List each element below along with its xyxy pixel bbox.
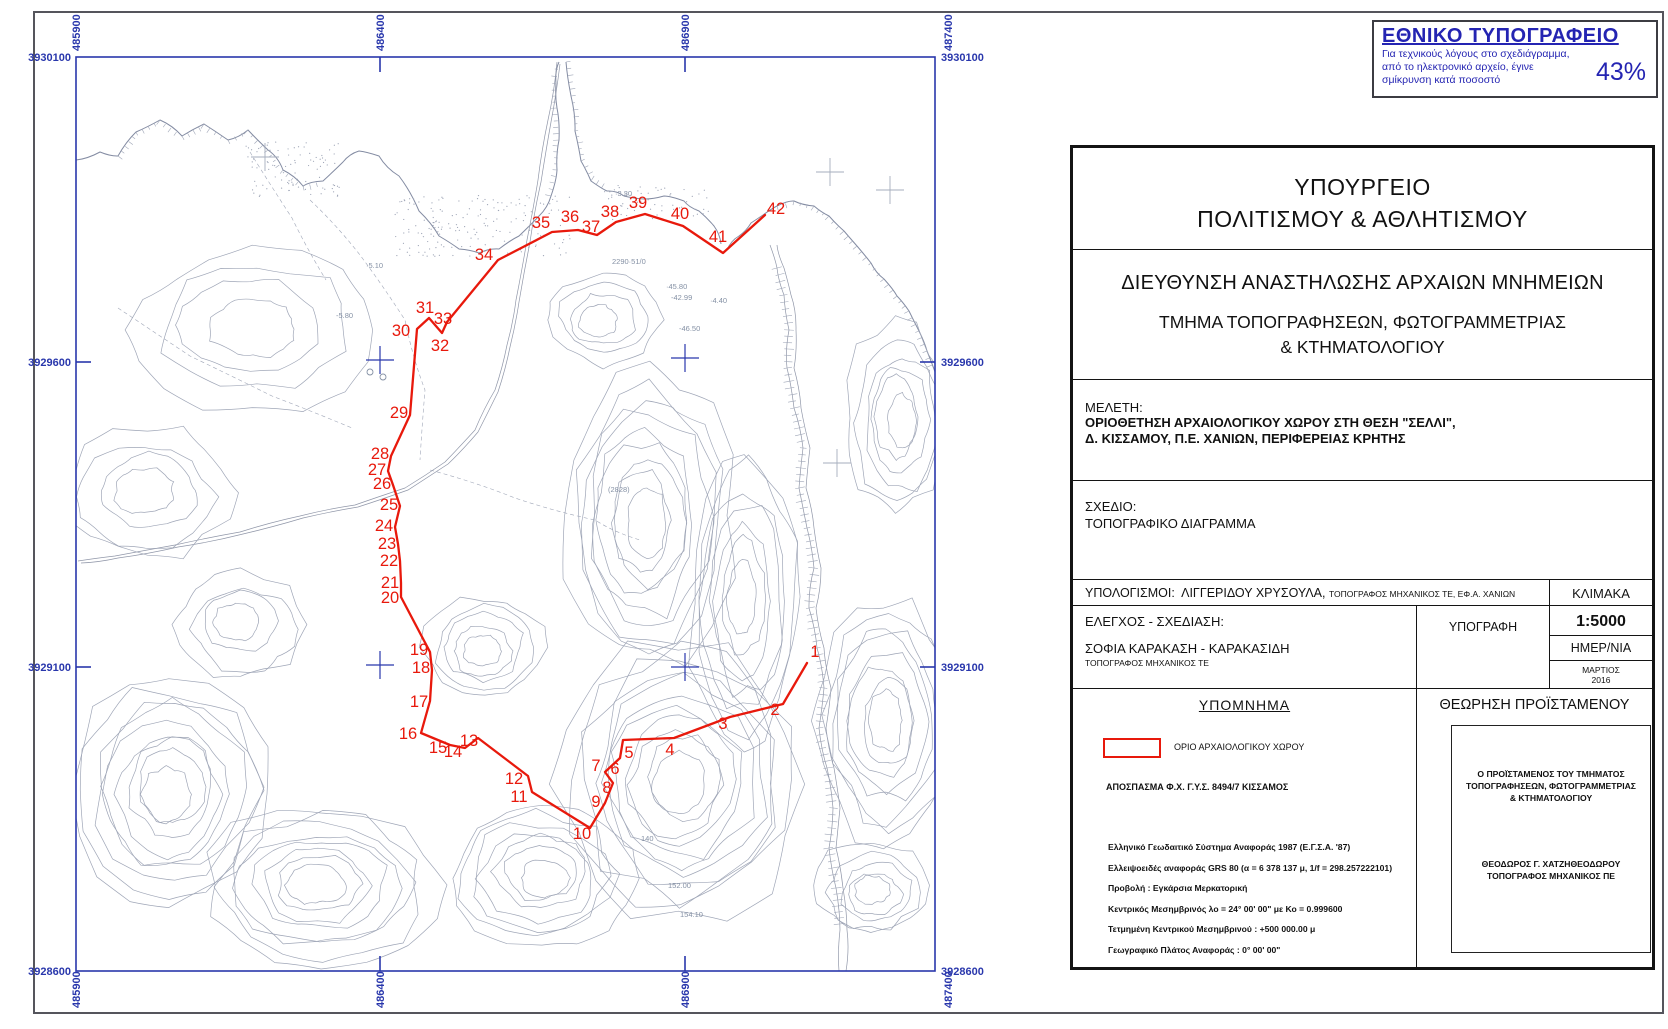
drawing-value: ΤΟΠΟΓΡΑΦΙΚΟ ΔΙΑΓΡΑΜΜΑ (1085, 516, 1652, 531)
boundary-point-label-17: 17 (410, 693, 428, 711)
boundary-point-label-41: 41 (709, 228, 727, 246)
signature-cell: ΥΠΟΓΡΑΦΗ (1416, 606, 1549, 688)
approval-head-line: Ο ΠΡΟΪΣΤΑΜΕΝΟΣ ΤΟΥ ΤΜΗΜΑΤΟΣ (1452, 768, 1650, 780)
study-line-2: Δ. ΚΙΣΣΑΜΟΥ, Π.Ε. ΧΑΝΙΩΝ, ΠΕΡΙΦΕΡΕΙΑΣ ΚΡ… (1085, 431, 1652, 447)
boundary-point-label-31: 31 (416, 299, 434, 317)
boundary-point-label-4: 4 (665, 741, 674, 759)
check-title: ΤΟΠΟΓΡΑΦΟΣ ΜΗΧΑΝΙΚΟΣ ΤΕ (1085, 658, 1416, 668)
ministry-section: ΥΠΟΥΡΓΕΙΟ ΠΟΛΙΤΙΣΜΟΥ & ΑΘΛΗΤΙΣΜΟΥ (1073, 148, 1652, 250)
svg-text:-46.50: -46.50 (679, 324, 700, 333)
scanned-topographic-drawing-page: 4859004859004864004864004869004869004874… (0, 0, 1668, 1029)
boundary-point-label-40: 40 (671, 205, 689, 223)
svg-text:140: 140 (641, 834, 654, 843)
geodetic-line: Ελληνικό Γεωδαιτικό Σύστημα Αναφοράς 198… (1108, 837, 1392, 858)
boundary-point-label-34: 34 (475, 246, 493, 264)
boundary-point-label-25: 25 (380, 496, 398, 514)
svg-text:486900: 486900 (680, 971, 692, 1008)
date-month: ΜΑΡΤΙΟΣ (1550, 665, 1652, 675)
boundary-point-label-9: 9 (591, 793, 600, 811)
calculations-label: ΥΠΟΛΟΓΙΣΜΟΙ: (1085, 586, 1175, 600)
geodetic-line: Γεωγραφικό Πλάτος Αναφοράς : 0° 00' 00" (1108, 940, 1392, 961)
drawing-section: ΣΧΕΔΙΟ: ΤΟΠΟΓΡΑΦΙΚΟ ΔΙΑΓΡΑΜΜΑ (1073, 481, 1652, 580)
geodetic-line: Τετμημένη Κεντρικού Μεσημβρινού : +500 0… (1108, 919, 1392, 940)
check-name: ΣΟΦΙΑ ΚΑΡΑΚΑΣΗ - ΚΑΡΑΚΑΣΙΔΗ (1085, 641, 1416, 656)
department-line-2: & ΚΤΗΜΑΤΟΛΟΓΙΟΥ (1073, 337, 1652, 358)
boundary-point-label-37: 37 (582, 218, 600, 236)
drawing-label: ΣΧΕΔΙΟ: (1085, 499, 1652, 514)
geodetic-info: Ελληνικό Γεωδαιτικό Σύστημα Αναφοράς 198… (1108, 837, 1392, 960)
calculations-name: ΛΙΓΓΕΡΙΔΟΥ ΧΡΥΣΟΥΛΑ, (1181, 586, 1325, 600)
stamp-line-3-text: σμίκρυνση κατά ποσοστό (1382, 74, 1500, 86)
stamp-line-3: σμίκρυνση κατά ποσοστό 43% (1382, 74, 1648, 87)
approval-head: Ο ΠΡΟΪΣΤΑΜΕΝΟΣ ΤΟΥ ΤΜΗΜΑΤΟΣ ΤΟΠΟΓΡΑΦΗΣΕΩ… (1452, 768, 1650, 804)
topo-linework (67, 61, 954, 971)
svg-text:485900: 485900 (71, 14, 83, 51)
boundary-point-label-16: 16 (399, 725, 417, 743)
boundary-point-label-42: 42 (767, 200, 785, 218)
date-year: 2016 (1550, 675, 1652, 685)
svg-text:3930100: 3930100 (941, 52, 984, 64)
boundary-point-label-10: 10 (573, 825, 591, 843)
approval-signatory-title: ΤΟΠΟΓΡΑΦΟΣ ΜΗΧΑΝΙΚΟΣ ΠΕ (1452, 870, 1650, 882)
ministry-line-2: ΠΟΛΙΤΙΣΜΟΥ & ΑΘΛΗΤΙΣΜΟΥ (1073, 206, 1652, 233)
boundary-point-label-15: 15 (429, 739, 447, 757)
scale-label-cell: ΚΛΙΜΑΚΑ (1549, 580, 1652, 605)
check-row: ΕΛΕΓΧΟΣ - ΣΧΕΔΙΑΣΗ: ΣΟΦΙΑ ΚΑΡΑΚΑΣΗ - ΚΑΡ… (1073, 606, 1652, 689)
boundary-point-label-28: 28 (371, 445, 389, 463)
boundary-point-label-3: 3 (718, 715, 727, 733)
geodetic-line: Κεντρικός Μεσημβρινός λο = 24° 00' 00" μ… (1108, 899, 1392, 920)
boundary-point-label-8: 8 (602, 779, 611, 797)
approval-signatory-name: ΘΕΟΔΩΡΟΣ Γ. ΧΑΤΖΗΘΕΟΔΩΡΟΥ (1452, 858, 1650, 870)
approval-title: ΘΕΩΡΗΣΗ ΠΡΟΪΣΤΑΜΕΝΟΥ (1417, 697, 1652, 713)
svg-text:3929100: 3929100 (941, 662, 984, 674)
calculations-title: ΤΟΠΟΓΡΑΦΟΣ ΜΗΧΑΝΙΚΟΣ ΤΕ, ΕΦ.Α. ΧΑΝΙΩΝ (1329, 589, 1515, 599)
grid-coordinate-labels: 4859004859004864004864004869004869004874… (28, 14, 984, 1008)
printing-office-stamp: ΕΘΝΙΚΟ ΤΥΠΟΓΡΑΦΕΙΟ Για τεχνικούς λόγους … (1372, 20, 1658, 98)
boundary-point-label-30: 30 (392, 322, 410, 340)
boundary-point-label-39: 39 (629, 194, 647, 212)
check-label: ΕΛΕΓΧΟΣ - ΣΧΕΔΙΑΣΗ: (1085, 614, 1416, 629)
svg-text:-5.80: -5.80 (336, 311, 353, 320)
date-value: ΜΑΡΤΙΟΣ 2016 (1550, 661, 1652, 688)
study-section: ΜΕΛΕΤΗ: ΟΡΙΟΘΕΤΗΣΗ ΑΡΧΑΙΟΛΟΓΙΚΟΥ ΧΩΡΟΥ Σ… (1073, 380, 1652, 481)
svg-text:-42.99: -42.99 (671, 293, 692, 302)
svg-text:152.00: 152.00 (668, 881, 691, 890)
svg-text:486900: 486900 (680, 14, 692, 51)
boundary-point-label-23: 23 (378, 535, 396, 553)
svg-text:3929600: 3929600 (28, 357, 71, 369)
ministry-line-1: ΥΠΟΥΡΓΕΙΟ (1073, 174, 1652, 201)
boundary-point-label-29: 29 (390, 404, 408, 422)
boundary-point-label-32: 32 (431, 337, 449, 355)
boundary-point-label-12: 12 (505, 770, 523, 788)
date-label: ΗΜΕΡ/ΝΙΑ (1550, 636, 1652, 661)
svg-text:3929100: 3929100 (28, 662, 71, 674)
legend-cell: ΥΠΟΜΝΗΜΑ ΟΡΙΟ ΑΡΧΑΙΟΛΟΓΙΚΟΥ ΧΩΡΟΥ ΑΠΟΣΠΑ… (1073, 689, 1416, 970)
boundary-point-label-35: 35 (532, 214, 550, 232)
svg-text:(2828): (2828) (608, 485, 630, 494)
svg-text:·5.10: ·5.10 (366, 261, 383, 270)
svg-text:487400: 487400 (943, 14, 955, 51)
legend-approval-row: ΥΠΟΜΝΗΜΑ ΟΡΙΟ ΑΡΧΑΙΟΛΟΓΙΚΟΥ ΧΩΡΟΥ ΑΠΟΣΠΑ… (1073, 689, 1652, 970)
approval-cell: ΘΕΩΡΗΣΗ ΠΡΟΪΣΤΑΜΕΝΟΥ Ο ΠΡΟΪΣΤΑΜΕΝΟΣ ΤΟΥ … (1416, 689, 1652, 970)
svg-text:·45.80: ·45.80 (666, 282, 687, 291)
geodetic-line: Προβολή : Εγκάρσια Μερκατορική (1108, 878, 1392, 899)
geodetic-line: Ελλειψοειδές αναφοράς GRS 80 (α = 6 378 … (1108, 858, 1392, 879)
boundary-point-label-7: 7 (591, 757, 600, 775)
boundary-point-label-36: 36 (561, 208, 579, 226)
svg-text:486400: 486400 (375, 971, 387, 1008)
study-line-1: ΟΡΙΟΘΕΤΗΣΗ ΑΡΧΑΙΟΛΟΓΙΚΟΥ ΧΩΡΟΥ ΣΤΗ ΘΕΣΗ … (1085, 415, 1652, 431)
svg-text:3930100: 3930100 (28, 52, 71, 64)
boundary-point-label-18: 18 (412, 659, 430, 677)
boundary-point-label-2: 2 (770, 701, 779, 719)
scale-date-column: 1:5000 ΗΜΕΡ/ΝΙΑ ΜΑΡΤΙΟΣ 2016 (1549, 606, 1652, 688)
boundary-legend-swatch (1103, 738, 1161, 758)
study-label: ΜΕΛΕΤΗ: (1085, 400, 1652, 415)
directorate: ΔΙΕΥΘΥΝΣΗ ΑΝΑΣΤΗΛΩΣΗΣ ΑΡΧΑΙΩΝ ΜΝΗΜΕΙΩΝ (1073, 272, 1652, 295)
legend-item-label: ΟΡΙΟ ΑΡΧΑΙΟΛΟΓΙΚΟΥ ΧΩΡΟΥ (1174, 742, 1304, 752)
department-line-1: ΤΜΗΜΑ ΤΟΠΟΓΡΑΦΗΣΕΩΝ, ΦΩΤΟΓΡΑΜΜΕΤΡΙΑΣ (1073, 312, 1652, 333)
stamp-title: ΕΘΝΙΚΟ ΤΥΠΟΓΡΑΦΕΙΟ (1382, 25, 1648, 48)
boundary-point-label-19: 19 (410, 641, 428, 659)
boundary-point-label-22: 22 (380, 552, 398, 570)
reduction-percent: 43% (1596, 66, 1646, 79)
boundary-point-label-38: 38 (601, 203, 619, 221)
svg-text:485900: 485900 (71, 971, 83, 1008)
boundary-point-label-5: 5 (624, 744, 633, 762)
boundary-point-label-11: 11 (510, 788, 527, 806)
svg-text:486400: 486400 (375, 14, 387, 51)
check-cell: ΕΛΕΓΧΟΣ - ΣΧΕΔΙΑΣΗ: ΣΟΦΙΑ ΚΑΡΑΚΑΣΗ - ΚΑΡ… (1073, 606, 1416, 688)
approval-signature-box: Ο ΠΡΟΪΣΤΑΜΕΝΟΣ ΤΟΥ ΤΜΗΜΑΤΟΣ ΤΟΠΟΓΡΑΦΗΣΕΩ… (1451, 725, 1651, 953)
calculations-row: ΥΠΟΛΟΓΙΣΜΟΙ: ΛΙΓΓΕΡΙΔΟΥ ΧΡΥΣΟΥΛΑ, ΤΟΠΟΓΡ… (1073, 580, 1652, 606)
svg-text:3929600: 3929600 (941, 357, 984, 369)
boundary-point-label-33: 33 (434, 310, 452, 328)
svg-text:·4.40: ·4.40 (710, 296, 727, 305)
boundary-point-label-27: 27 (368, 461, 386, 479)
approval-head-line: & ΚΤΗΜΑΤΟΛΟΓΙΟΥ (1452, 792, 1650, 804)
boundary-point-label-24: 24 (375, 517, 393, 535)
boundary-point-label-21: 21 (381, 574, 399, 592)
svg-text:3928600: 3928600 (28, 966, 71, 978)
title-block: ΥΠΟΥΡΓΕΙΟ ΠΟΛΙΤΙΣΜΟΥ & ΑΘΛΗΤΙΣΜΟΥ ΔΙΕΥΘΥ… (1070, 145, 1655, 970)
calculations-cell: ΥΠΟΛΟΓΙΣΜΟΙ: ΛΙΓΓΕΡΙΔΟΥ ΧΡΥΣΟΥΛΑ, ΤΟΠΟΓΡ… (1073, 580, 1549, 605)
svg-text:154.10: 154.10 (680, 910, 703, 919)
boundary-point-label-6: 6 (610, 760, 619, 778)
scale-value: 1:5000 (1550, 606, 1652, 636)
directorate-section: ΔΙΕΥΘΥΝΣΗ ΑΝΑΣΤΗΛΩΣΗΣ ΑΡΧΑΙΩΝ ΜΝΗΜΕΙΩΝ Τ… (1073, 250, 1652, 380)
map-sheet-excerpt: ΑΠΟΣΠΑΣΜΑ Φ.Χ. Γ.Υ.Σ. 8494/7 ΚΙΣΣΑΜΟΣ (1106, 782, 1288, 792)
archaeological-site-boundary-line (388, 214, 807, 828)
approval-signatory: ΘΕΟΔΩΡΟΣ Γ. ΧΑΤΖΗΘΕΟΔΩΡΟΥ ΤΟΠΟΓΡΑΦΟΣ ΜΗΧ… (1452, 858, 1650, 882)
boundary-point-label-1: 1 (810, 643, 819, 661)
svg-text:2290·51/0: 2290·51/0 (612, 257, 646, 266)
approval-head-line: ΤΟΠΟΓΡΑΦΗΣΕΩΝ, ΦΩΤΟΓΡΑΜΜΕΤΡΙΑΣ (1452, 780, 1650, 792)
legend-title: ΥΠΟΜΝΗΜΑ (1073, 697, 1416, 713)
boundary-point-label-13: 13 (460, 732, 478, 750)
svg-text:3928600: 3928600 (941, 966, 984, 978)
